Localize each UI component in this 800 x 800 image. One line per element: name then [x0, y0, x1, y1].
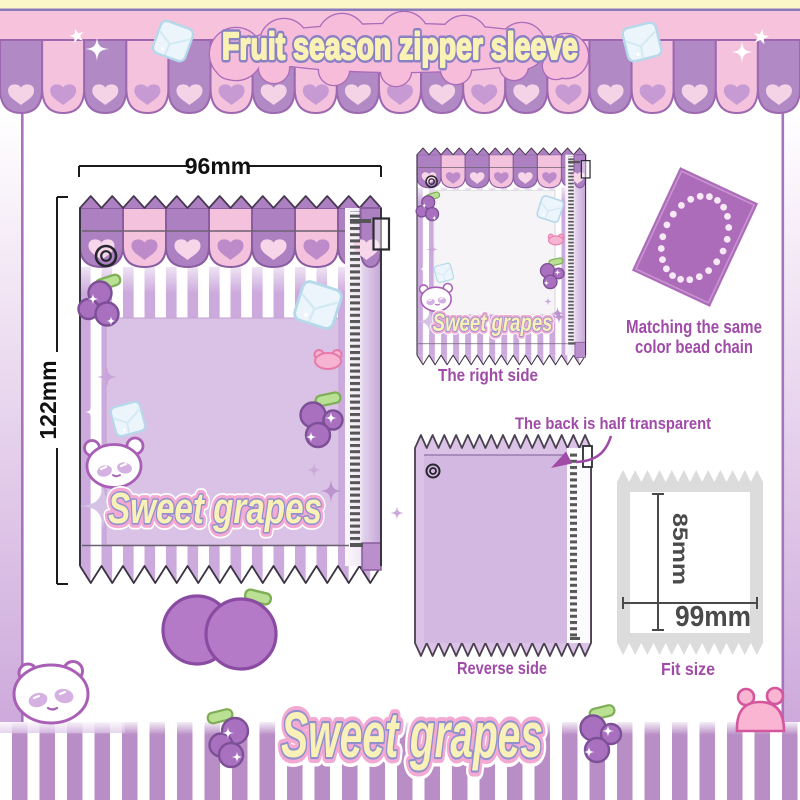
svg-text:Sweet grapes: Sweet grapes	[281, 699, 543, 771]
svg-text:Reverse side: Reverse side	[457, 658, 547, 678]
svg-text:The right side: The right side	[438, 365, 538, 385]
svg-text:96mm: 96mm	[185, 153, 251, 179]
svg-text:Fruit season zipper sleeve: Fruit season zipper sleeve	[222, 26, 578, 68]
svg-text:99mm: 99mm	[675, 601, 751, 633]
svg-text:Fit size: Fit size	[661, 659, 715, 679]
svg-text:The back is half transparent: The back is half transparent	[515, 414, 711, 433]
svg-text:122mm: 122mm	[35, 360, 61, 439]
svg-text:85mm: 85mm	[668, 513, 691, 585]
svg-text:color bead chain: color bead chain	[635, 336, 753, 357]
svg-text:Matching the same: Matching the same	[626, 316, 762, 337]
